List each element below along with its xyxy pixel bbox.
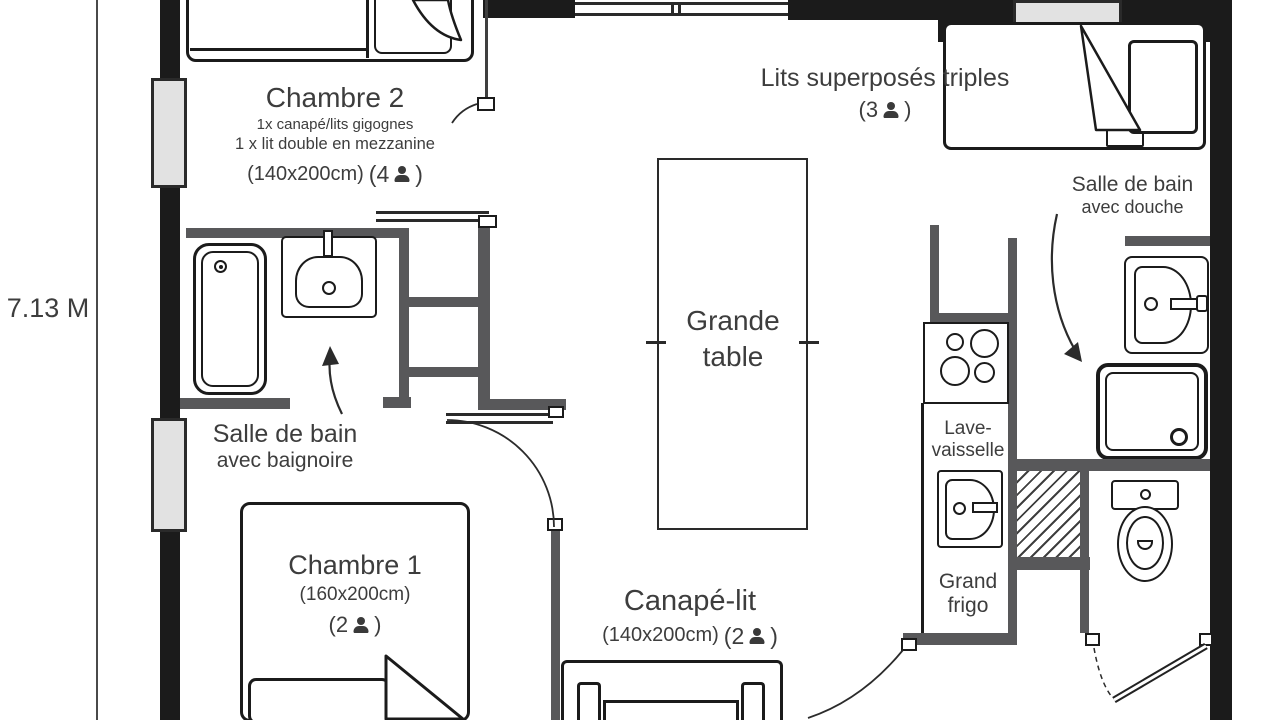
kitchen-sink-drain bbox=[953, 502, 966, 515]
bath-tub-sink-drain bbox=[322, 281, 336, 295]
bunks-label: Lits superposés triples (3 ) bbox=[730, 64, 1040, 123]
bath-shower-sink-drain bbox=[1144, 297, 1158, 311]
top-wall-left bbox=[483, 0, 575, 18]
chambre1-pillow bbox=[248, 678, 390, 720]
wardrobe-shelf-1 bbox=[399, 297, 489, 307]
right-wall bbox=[1210, 0, 1232, 720]
fridge-line1: Grand bbox=[920, 570, 1016, 594]
chambre2-bed-divider bbox=[366, 0, 369, 58]
floor-plan: 7.13 M Chambre 2 1x canapé/lits gigognes… bbox=[0, 0, 1280, 720]
window-left-top bbox=[151, 78, 187, 188]
sofa-title: Canapé-lit bbox=[560, 585, 820, 619]
window-top-center-tick bbox=[678, 2, 681, 16]
bath-shower-sink-faucet-knob bbox=[1196, 295, 1208, 312]
sofa-seat bbox=[603, 700, 739, 720]
person-icon bbox=[394, 166, 410, 182]
shower-drain bbox=[1170, 428, 1188, 446]
toilet-tank-button bbox=[1140, 489, 1151, 500]
window-top-center bbox=[575, 2, 788, 16]
dimension-label: 7.13 M bbox=[2, 293, 94, 324]
sliding-door-top-handle bbox=[478, 215, 497, 228]
person-icon bbox=[883, 102, 899, 118]
kitchen-wall-left bbox=[930, 225, 939, 324]
kitchen-bottom-wall bbox=[903, 633, 1017, 645]
living-door-leaf bbox=[551, 527, 560, 720]
person-icon bbox=[353, 617, 369, 633]
sofa-armrest-right bbox=[741, 682, 765, 720]
bath-tub-arrowhead bbox=[322, 346, 339, 366]
chambre1-label: Chambre 1 (160x200cm) (2 ) bbox=[250, 550, 460, 638]
stove-burner bbox=[970, 329, 999, 358]
entrance-door-handle bbox=[901, 638, 917, 651]
living-door-handle bbox=[547, 518, 563, 531]
person-icon bbox=[749, 628, 765, 644]
chambre2-detail2: 1 x lit double en mezzanine bbox=[190, 135, 480, 154]
chambre2-bed-line bbox=[190, 48, 368, 51]
window-top-center-tick bbox=[671, 2, 674, 16]
chambre1-size: (160x200cm) bbox=[250, 584, 460, 606]
stove-burner bbox=[940, 356, 970, 386]
stove-burner bbox=[974, 362, 995, 383]
hatch-bottom-wall bbox=[1012, 557, 1090, 570]
chambre2-door-leaf bbox=[485, 0, 488, 100]
wardrobe-shelf-2 bbox=[399, 367, 489, 377]
bath-tub-arrow bbox=[330, 356, 343, 414]
sofa-size: (140x200cm) bbox=[602, 624, 719, 647]
bath-tub-line2: avec baignoire bbox=[170, 449, 400, 473]
technical-hatch bbox=[1017, 471, 1080, 557]
bath-shower-line1: Salle de bain bbox=[1040, 173, 1225, 197]
fridge-label: Grand frigo bbox=[920, 570, 1016, 619]
chambre2-title: Chambre 2 bbox=[190, 82, 480, 114]
dimension-line bbox=[96, 0, 98, 720]
top-wall-mid bbox=[788, 0, 938, 20]
bath-shower-label: Salle de bain avec douche bbox=[1040, 173, 1225, 218]
stove-burner bbox=[946, 333, 964, 351]
bunks-title: Lits superposés triples bbox=[730, 64, 1040, 93]
wardrobe-left-wall bbox=[399, 228, 409, 408]
table-label: Grande table bbox=[660, 305, 806, 374]
sofa-label: Canapé-lit (140x200cm) (2 ) bbox=[560, 585, 820, 649]
kitchen-sink-faucet bbox=[972, 502, 998, 513]
wc-door-leaf-outer bbox=[1114, 646, 1206, 700]
wall-foot bbox=[383, 397, 411, 408]
wc-left-wall bbox=[1080, 471, 1089, 633]
bath-shower-line2: avec douche bbox=[1040, 197, 1225, 218]
bath-tub-line1: Salle de bain bbox=[170, 420, 400, 449]
bathtub-faucet-dot bbox=[219, 265, 223, 269]
sliding-door-top bbox=[376, 211, 489, 222]
sliding-door-bottom-handle bbox=[548, 406, 564, 418]
chambre2-size: (140x200cm) bbox=[247, 163, 364, 186]
dishwasher-label: Lave- vaisselle bbox=[922, 418, 1014, 462]
bunks-capacity: (3 ) bbox=[730, 97, 1040, 123]
chambre2-capacity: (140x200cm) (4 ) bbox=[190, 161, 480, 188]
table-line1: Grande bbox=[660, 305, 806, 337]
chambre2-detail1: 1x canapé/lits gigognes bbox=[190, 116, 480, 133]
entrance-door-arc bbox=[808, 650, 903, 718]
dishwasher-line2: vaisselle bbox=[922, 440, 1014, 462]
sliding-door-bottom bbox=[446, 413, 553, 424]
chambre1-title: Chambre 1 bbox=[250, 550, 460, 581]
dishwasher-line1: Lave- bbox=[922, 418, 1014, 440]
bath-tub-sink-faucet bbox=[323, 230, 333, 257]
fridge-line2: frigo bbox=[920, 594, 1016, 618]
chambre1-capacity: (2 ) bbox=[250, 612, 460, 638]
bath-tub-label: Salle de bain avec baignoire bbox=[170, 420, 400, 473]
bath-shower-arrow bbox=[1052, 214, 1075, 350]
chambre2-pillow bbox=[374, 0, 452, 54]
wc-door-leaf-inner bbox=[1114, 646, 1206, 700]
bath-shower-arrowhead bbox=[1064, 342, 1082, 362]
wc-door-arc bbox=[1094, 648, 1112, 697]
bunk-pillow bbox=[1128, 40, 1198, 134]
mid-gray-wall bbox=[1012, 459, 1210, 471]
bathtub-inner bbox=[201, 251, 259, 387]
sofa-armrest-left bbox=[577, 682, 601, 720]
chambre2-label: Chambre 2 1x canapé/lits gigognes 1 x li… bbox=[190, 82, 480, 188]
table-line2: table bbox=[660, 341, 806, 373]
wardrobe-right-wall bbox=[478, 221, 490, 410]
kitchen-wall-right-top bbox=[1008, 238, 1017, 324]
wc-door-handle-right bbox=[1199, 633, 1213, 646]
bath-tub-bottom-wall bbox=[180, 398, 290, 409]
sofa-capacity: (140x200cm) (2 ) bbox=[560, 623, 820, 650]
wc-door-handle-left bbox=[1085, 633, 1100, 646]
bath-shower-top-wall bbox=[1125, 236, 1210, 246]
